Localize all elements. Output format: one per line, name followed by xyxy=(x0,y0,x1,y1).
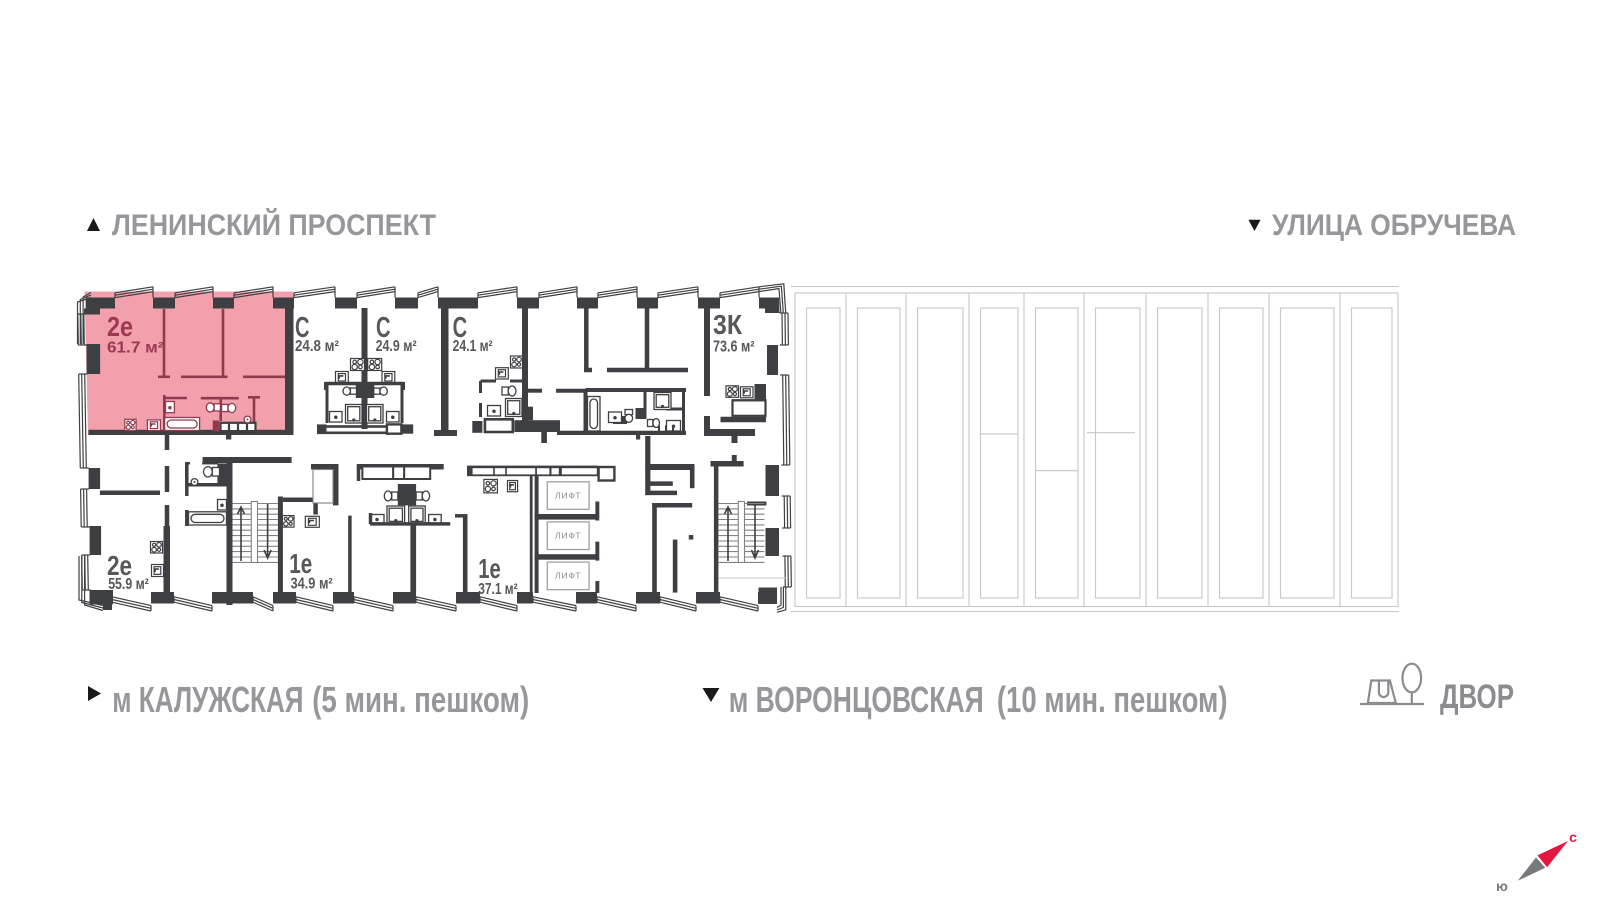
svg-text:24.8 м²: 24.8 м² xyxy=(295,338,339,355)
svg-text:УЛИЦА ОБРУЧЕВА: УЛИЦА ОБРУЧЕВА xyxy=(1272,209,1516,242)
svg-text:24.1 м²: 24.1 м² xyxy=(453,338,493,355)
svg-text:24.9 м²: 24.9 м² xyxy=(376,338,417,355)
svg-text:2е: 2е xyxy=(107,311,133,342)
svg-text:3К: 3К xyxy=(713,309,743,340)
svg-text:(5 мин. пешком): (5 мин. пешком) xyxy=(312,679,529,720)
svg-text:55.9 м²: 55.9 м² xyxy=(108,576,149,593)
svg-text:61.7 м²: 61.7 м² xyxy=(107,340,164,357)
svg-text:ДВОР: ДВОР xyxy=(1440,678,1514,716)
svg-text:ЛИФТ: ЛИФТ xyxy=(555,490,581,500)
svg-text:37.1 м²: 37.1 м² xyxy=(478,581,517,598)
svg-text:1е: 1е xyxy=(478,553,501,584)
svg-text:ЛИФТ: ЛИФТ xyxy=(555,571,581,581)
svg-text:м ВОРОНЦОВСКАЯ: м ВОРОНЦОВСКАЯ xyxy=(729,679,984,720)
svg-text:ЛИФТ: ЛИФТ xyxy=(555,531,581,541)
svg-text:ю: ю xyxy=(1496,878,1508,894)
svg-text:(10 мин. пешком): (10 мин. пешком) xyxy=(997,679,1228,720)
svg-text:1е: 1е xyxy=(289,548,312,579)
svg-text:73.6 м²: 73.6 м² xyxy=(713,339,755,356)
svg-text:м КАЛУЖСКАЯ: м КАЛУЖСКАЯ xyxy=(112,679,303,720)
svg-text:с: с xyxy=(1569,829,1577,845)
svg-text:ЛЕНИНСКИЙ ПРОСПЕКТ: ЛЕНИНСКИЙ ПРОСПЕКТ xyxy=(112,208,436,242)
svg-text:34.9 м²: 34.9 м² xyxy=(291,576,333,593)
